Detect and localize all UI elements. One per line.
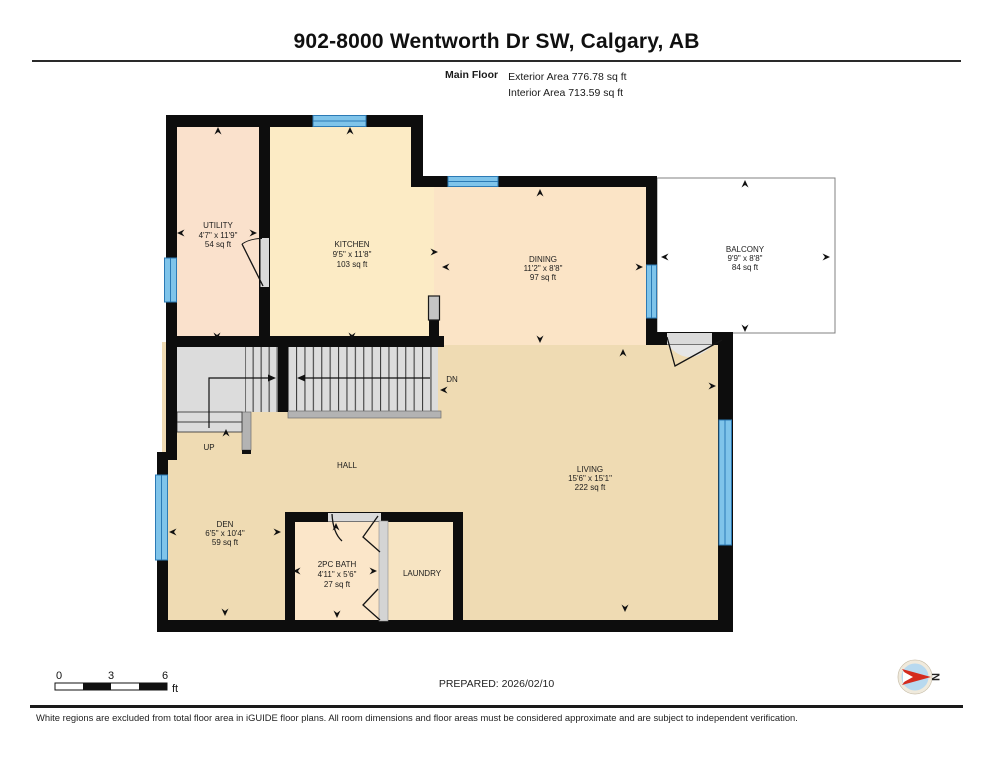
stair-railing-cap <box>242 450 251 454</box>
stair-down-label: DN <box>446 375 458 384</box>
svg-text:222 sq ft: 222 sq ft <box>575 483 606 492</box>
floorplan-page: 902-8000 Wentworth Dr SW, Calgary, AB Ma… <box>0 0 993 768</box>
svg-text:UTILITY: UTILITY <box>203 221 233 230</box>
svg-text:84 sq ft: 84 sq ft <box>732 263 759 272</box>
stair-railing-vertical <box>242 412 251 450</box>
svg-text:BALCONY: BALCONY <box>726 245 765 254</box>
stair-up-label: UP <box>203 443 214 452</box>
floor-plan-svg: UTILITY 4'7" x 11'9" 54 sq ft KITCHEN 9'… <box>0 0 993 768</box>
utility-left-window <box>165 258 177 302</box>
svg-text:15'6" x 15'1": 15'6" x 15'1" <box>568 474 612 483</box>
wall-top <box>166 115 423 127</box>
svg-text:LIVING: LIVING <box>577 465 603 474</box>
living-right-window <box>719 420 732 545</box>
svg-text:4'7" x 11'9": 4'7" x 11'9" <box>199 231 238 240</box>
svg-text:DINING: DINING <box>529 255 557 264</box>
svg-text:103 sq ft: 103 sq ft <box>337 260 368 269</box>
disclaimer-text: White regions are excluded from total fl… <box>36 712 798 723</box>
dining-balcony-window <box>647 265 657 318</box>
svg-text:6'5" x 10'4": 6'5" x 10'4" <box>205 529 245 538</box>
svg-text:DEN: DEN <box>217 520 234 529</box>
svg-text:9'5" x 11'8": 9'5" x 11'8" <box>333 250 372 259</box>
bath-door-opening <box>328 513 381 522</box>
svg-text:59 sq ft: 59 sq ft <box>212 538 239 547</box>
footer-divider <box>30 705 963 708</box>
wall-kitchen-bottom <box>166 336 444 347</box>
wall-dining-balcony <box>646 178 657 345</box>
den-left-window <box>156 475 168 560</box>
utility-door-opening <box>261 238 270 287</box>
laundry-door-track <box>379 521 388 621</box>
stair-up-steps <box>245 347 278 412</box>
room-laundry-label: LAUNDRY <box>403 569 442 578</box>
stair-railing-horizontal <box>288 411 441 418</box>
balcony-door-opening <box>667 333 712 345</box>
wall-laundry-right <box>453 512 463 624</box>
room-hall-label: HALL <box>337 461 358 470</box>
dining-top-window <box>448 177 498 187</box>
kitchen-top-window <box>313 116 366 127</box>
prepared-date: PREPARED: 2026/02/10 <box>0 678 993 690</box>
svg-text:4'11" x 5'6": 4'11" x 5'6" <box>318 570 357 579</box>
room-kitchen-floor <box>265 121 434 345</box>
stair-landing <box>177 347 245 412</box>
room-kitchen-label: KITCHEN 9'5" x 11'8" 103 sq ft <box>333 240 372 269</box>
wall-bottom <box>157 620 733 632</box>
wall-stub-end-cap <box>429 296 440 320</box>
svg-text:11'2" x 8'8": 11'2" x 8'8" <box>524 264 563 273</box>
svg-text:9'9" x 8'8": 9'9" x 8'8" <box>728 254 763 263</box>
wall-stair-center <box>278 347 288 412</box>
wall-utility-kitchen <box>259 121 270 347</box>
wall-bath-left <box>285 512 295 624</box>
svg-text:2PC BATH: 2PC BATH <box>318 560 357 569</box>
stair-down-steps <box>288 347 438 412</box>
svg-text:KITCHEN: KITCHEN <box>334 240 369 249</box>
svg-text:27 sq ft: 27 sq ft <box>324 580 351 589</box>
svg-text:54 sq ft: 54 sq ft <box>205 240 232 249</box>
svg-text:97 sq ft: 97 sq ft <box>530 273 557 282</box>
